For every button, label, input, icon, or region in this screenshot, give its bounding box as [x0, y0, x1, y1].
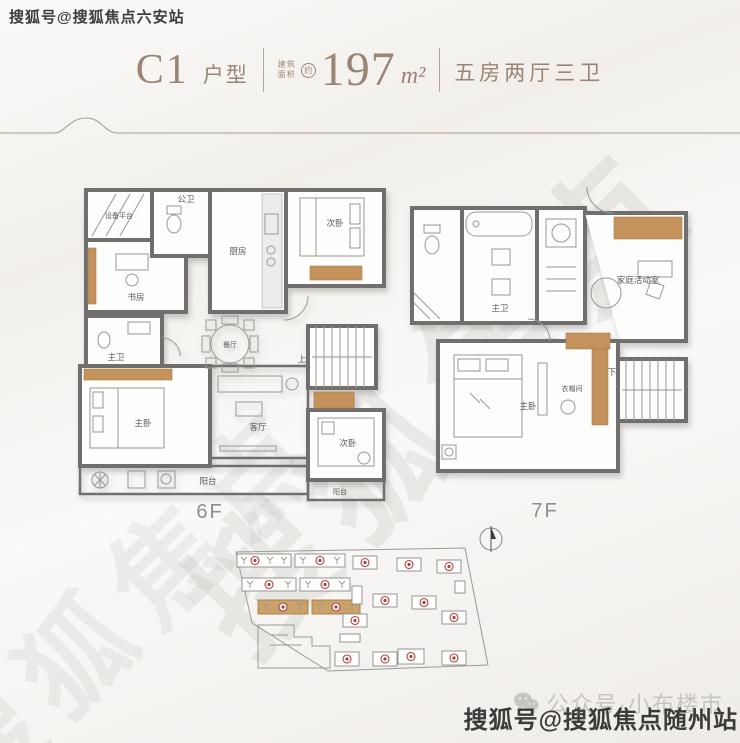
floor-7f-tag: 7F — [510, 500, 580, 523]
room-label: 次卧 — [326, 218, 344, 228]
header-divider — [263, 48, 264, 92]
area-group: 建筑 面积 约 197 m² — [278, 46, 426, 94]
wardrobe-icon — [614, 217, 682, 239]
area-prefix-line1: 建筑 — [278, 60, 296, 70]
room-label: 设备平台 — [105, 211, 133, 220]
door-arc-icon — [162, 338, 180, 356]
room-label: 书房 — [127, 292, 144, 302]
room-label: 主卫 — [491, 303, 509, 313]
room-label: 主卧 — [134, 418, 152, 428]
sofa-icon — [218, 376, 298, 451]
header-divider — [439, 48, 440, 92]
room-label: 客厅 — [249, 422, 267, 432]
floor-plan-6f: 设备平台 书房 公卫 厨房 次卧 主卫 餐厅 主卧 客厅 次卧 阳台 阳台 上 — [58, 178, 393, 508]
unit-type-label: 户型 — [203, 51, 249, 89]
area-value: 197 — [321, 46, 396, 94]
wardrobe-icon — [566, 333, 610, 349]
page: 搜狐号@搜狐焦点六安站 搜狐焦点 搜狐焦点 C1 户型 建筑 面积 约 197 … — [0, 0, 740, 743]
layout-description: 五房两厅三卫 — [454, 53, 604, 87]
area-prefix: 建筑 面积 — [278, 60, 296, 80]
room-label: 阳台 — [333, 487, 347, 496]
sohu-watermark-top: 搜狐号@搜狐焦点六安站 — [9, 6, 185, 27]
door-arc-icon — [587, 187, 613, 213]
room-label: 餐厅 — [223, 340, 237, 349]
stairs-label: 上 — [298, 354, 307, 364]
wave-divider — [0, 105, 740, 145]
unit-code: C1 — [136, 49, 189, 91]
wardrobe-icon — [314, 392, 354, 408]
school-building — [258, 625, 330, 668]
balcony-items-icon — [92, 471, 175, 488]
room-label: 家庭活动室 — [617, 275, 660, 285]
floor-6f-tag: 6F — [175, 501, 245, 524]
room-label: 主卫 — [107, 352, 125, 362]
wardrobe-icon — [310, 266, 362, 280]
sohu-watermark-bottom: 搜狐号@搜狐焦点随州站 — [464, 700, 738, 735]
approx-badge: 约 — [301, 63, 316, 78]
room-label: 主卧 — [519, 401, 537, 411]
area-unit: m² — [401, 51, 426, 90]
room-label: 公卫 — [177, 194, 195, 204]
wardrobe-icon — [88, 248, 96, 304]
wardrobe-icon — [84, 369, 172, 380]
area-prefix-line2: 面积 — [278, 70, 296, 80]
room-label: 厨房 — [229, 246, 246, 256]
stairs-label: 下 — [608, 367, 617, 377]
site-row-buildings — [237, 554, 360, 668]
kitchen-counter-icon — [262, 194, 282, 308]
unit-header: C1 户型 建筑 面积 约 197 m² 五房两厅三卫 — [0, 46, 740, 94]
wardrobe-icon — [592, 349, 608, 425]
floor-plan-7f: 主卫 家庭活动室 主卧 衣帽间 下 — [400, 183, 695, 483]
room-label: 阳台 — [199, 476, 216, 486]
room-label: 次卧 — [339, 438, 357, 448]
site-plan — [222, 543, 512, 683]
room-label: 衣帽间 — [562, 384, 583, 393]
